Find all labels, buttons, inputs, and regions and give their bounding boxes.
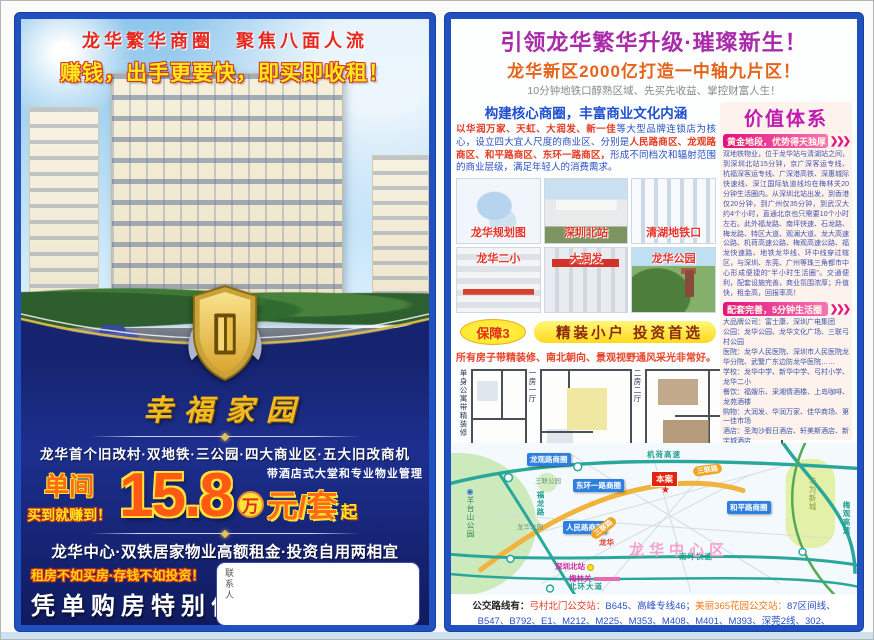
chevron-right-icon: ❯❯❯ [830,304,849,315]
photo-caption: 龙华公园 [632,250,715,266]
tagline: 10分钟地铁口醇熟区域、先买先收益、掌控财富人生！ [456,83,852,98]
photo-caption: 清湖地铁口 [632,224,715,240]
right-page-header: 引领龙华繁华升级·璀璨新生！ 龙华新区2000亿打造一中轴九片区！ 10分钟地铁… [456,25,852,98]
price-amount: 15.8 [119,468,232,524]
ornament-divider [90,434,359,439]
feature-line: 龙华首个旧改村·双地铁·三公园·四大商业区·五大旧改商机 [21,443,429,463]
subheadline: 龙华新区2000亿打造一中轴九片区！ [456,57,852,82]
per-unit-label: 元/套 [267,481,338,526]
chevron-right-icon: ❯❯❯ [830,136,849,147]
district-label-center: 龙华中心区 [629,539,729,560]
checkpoint-label-meilin: 梅林关 [569,573,620,584]
flyer-scan: 龙华繁华商圈 聚焦八面人流 赚钱，出手更要快，即买即收租！ [0,0,874,640]
bus-stop-1: 弓村北门公交站： [529,601,605,612]
station-label-north: 深圳北站 [555,561,594,572]
photo-caption: 深圳北站 [545,224,628,240]
park-label-sanlian: 三联公园 [535,475,561,485]
headline: 引领龙华繁华升级·璀璨新生！ [456,25,852,57]
bus-routes-1: B645、高峰专线46； [605,601,695,612]
contact-label: 联系人 [223,568,236,601]
commerce-paragraph: 以华润万家、天虹、大润发、新一佳等大型品牌连锁店为核心，设立四大宜人尺度的商业区… [456,124,716,175]
photo-north-station: 深圳北站 [544,178,629,244]
guarantee-title: 精装小户 投资首选 [534,321,716,343]
map-roads [451,443,857,594]
contact-box: 联系人 [217,563,419,625]
photo-caption: 龙华二小 [457,250,540,266]
left-page-header: 龙华繁华商圈 聚焦八面人流 赚钱，出手更要快，即买即收租！ [21,27,429,87]
highway-label-jihe: 机荷高速 [647,449,681,460]
park-label-yangtaishan: ◉羊台山公园 [465,487,476,541]
photo-caption: 大润发 [545,250,628,266]
site-star-icon: ★ [661,485,670,496]
guarantee-badge: 保障3 [460,319,526,345]
management-note: 带酒店式大堂和专业物业管理 [267,465,423,481]
photo-planning-map: 龙华规划图 [456,178,541,244]
photo-primary-school: 龙华二小 [456,247,541,313]
scan-edge [1,632,873,639]
gold-shield-badge-icon [186,281,264,385]
bus-routes-label: 公交路线有： [472,601,529,612]
left-page-lower: 幸福家园 龙华首个旧改村·双地铁·三公园·四大商业区·五大旧改商机 单间 买到就… [21,359,429,625]
buy-note: 买到就赚到！ [27,505,111,525]
biz-label-donghuan: 东环一路商圈 [573,479,624,492]
unit-type-label: 单间 [27,467,111,503]
photo-longhua-park: 龙华公园 [631,247,716,313]
left-page: 龙华繁华商圈 聚焦八面人流 赚钱，出手更要快，即买即收租！ [15,13,435,631]
bus-stop-2: 美丽365花园公交站： [695,601,787,612]
guarantee-row: 保障3 精装小户 投资首选 [456,319,716,345]
biz-label-longguan: 龙观路商圈 [527,453,571,466]
guarantee-note: 所有房子带精装修、南北朝向、景观视野通风采光非常好。 [456,349,716,364]
from-label: 起 [340,498,357,523]
photo-grid: 龙华规划图 深圳北站 清湖地铁口 龙华二小 大润发 龙华公园 [456,178,716,313]
location-map: 机荷高速 梅观高速 福龙路 南坪快速 北环大道 ◉羊台山公园 华为新城 三联公园… [451,443,857,595]
ornament-divider [90,531,359,536]
section-header-location: 黄金地段，优势得天独厚 [723,134,828,148]
commerce-column: 构建核心商圈，丰富商业文化内涵 以华润万家、天虹、大润发、新一佳等大型品牌连锁店… [456,102,716,440]
price-block: 单间 买到就赚到！ 15.8 万 带酒店式大堂和专业物业管理 元/套 起 [21,465,429,526]
checkpoint-bar-icon [594,577,620,581]
highway-label-meiguan: 梅观高速 [841,501,852,535]
bus-routes: 公交路线有：弓村北门公交站：B645、高峰专线46；美丽365花园公交站：87区… [451,595,857,631]
section-header-amenities: 配套完善，5分钟生活圈 [723,302,828,316]
photo-rt-mart: 大润发 [544,247,629,313]
value-section-header: 黄金地段，优势得天独厚 ❯❯❯ [723,134,849,148]
photo-metro-entrance: 清湖地铁口 [631,178,716,244]
value-system-column: 价值体系 黄金地段，优势得天独厚 ❯❯❯ 双地铁物业，位于龙华站与清湖站之间，到… [720,102,852,440]
hook-line: 赚钱，出手更要快，即买即收租！ [21,57,429,87]
section-body-location: 双地铁物业，位于龙华站与清湖站之间，到深圳北站15分钟，京广深客运专线、杭福深客… [723,150,849,299]
station-dot-icon [587,564,594,571]
price-right-column: 带酒店式大堂和专业物业管理 元/套 起 [267,465,423,526]
address-line: 地址：龙华新区清湖美丽365花园附近(清湖地铁口旁) [31,624,419,631]
photo-caption: 龙华规划图 [457,224,540,240]
road-label-fulong: 福龙路 [535,491,546,517]
left-page-footer: 租房不如买房·存钱不如投资！ 凭单购房特别优惠 地址：龙华新区清湖美丽365花园… [21,565,429,631]
park-label-longhua: 龙华公园 [517,521,543,531]
brand-line: 龙华繁华商圈 聚焦八面人流 [21,27,429,53]
right-page: 引领龙华繁华升级·璀璨新生！ 龙华新区2000亿打造一中轴九片区！ 10分钟地铁… [445,13,863,631]
station-label-longhua: 龙华 [599,537,614,548]
value-section-header: 配套完善，5分钟生活圈 ❯❯❯ [723,302,849,316]
price-left-column: 单间 买到就赚到！ [27,467,111,525]
commerce-header: 构建核心商圈，丰富商业文化内涵 [456,102,716,122]
biz-label-heping: 和平路商圈 [727,501,771,514]
park-icon: ◉ [465,487,476,496]
wan-circle: 万 [237,491,264,518]
commerce-seg1: 以华润万家、天虹、大润发、新一佳 [456,124,616,135]
area-label-huawei: 华为新城 [807,477,818,511]
main-slogan: 龙华中心·双铁居家物业高额租金·投资自用两相宜 [21,540,429,562]
value-system-title: 价值体系 [723,104,849,131]
